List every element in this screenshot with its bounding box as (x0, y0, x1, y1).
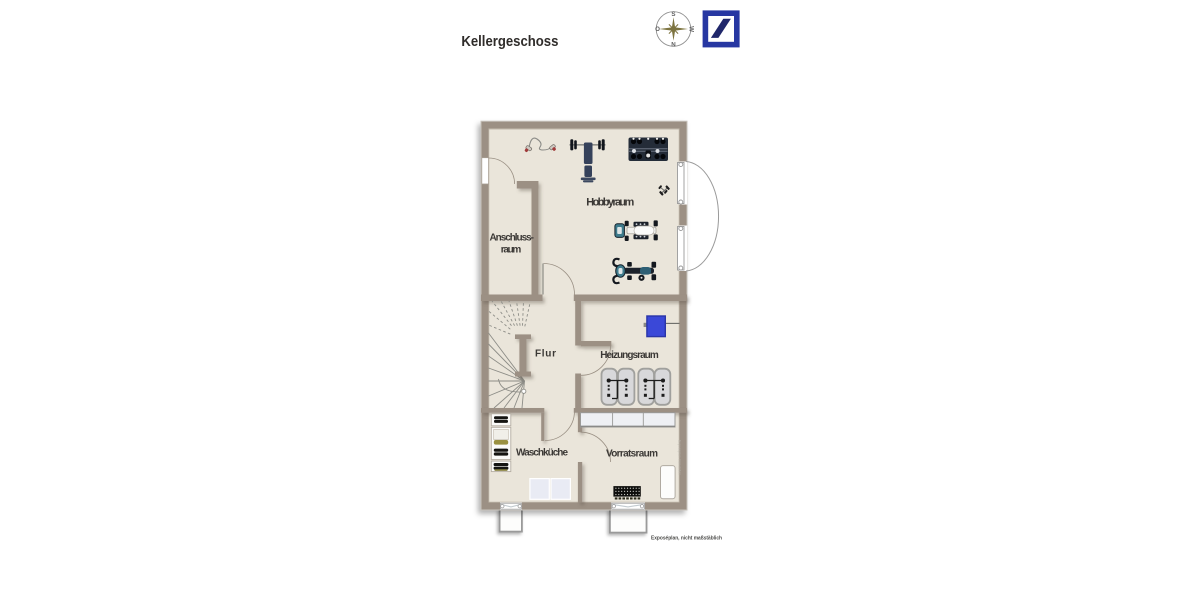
svg-text:Anschluss-: Anschluss- (489, 233, 534, 244)
svg-text:Kellergeschoss: Kellergeschoss (461, 33, 558, 50)
svg-text:Exposéplan, nicht maßstäblich: Exposéplan, nicht maßstäblich (651, 536, 722, 542)
svg-text:W: W (687, 26, 694, 32)
svg-text:Exposeplan Immobilien: Exposeplan Immobilien (678, 440, 682, 475)
svg-text:Flur: Flur (535, 349, 556, 360)
svg-text:raum: raum (501, 245, 522, 256)
svg-text:Heizungsraum: Heizungsraum (600, 350, 659, 361)
svg-text:Hobbyraum: Hobbyraum (586, 197, 634, 209)
svg-text:N: N (671, 42, 676, 49)
svg-text:S: S (671, 11, 675, 18)
svg-text:Vorratsraum: Vorratsraum (606, 449, 658, 460)
svg-text:O: O (655, 26, 660, 33)
svg-text:Waschküche: Waschküche (516, 448, 568, 459)
